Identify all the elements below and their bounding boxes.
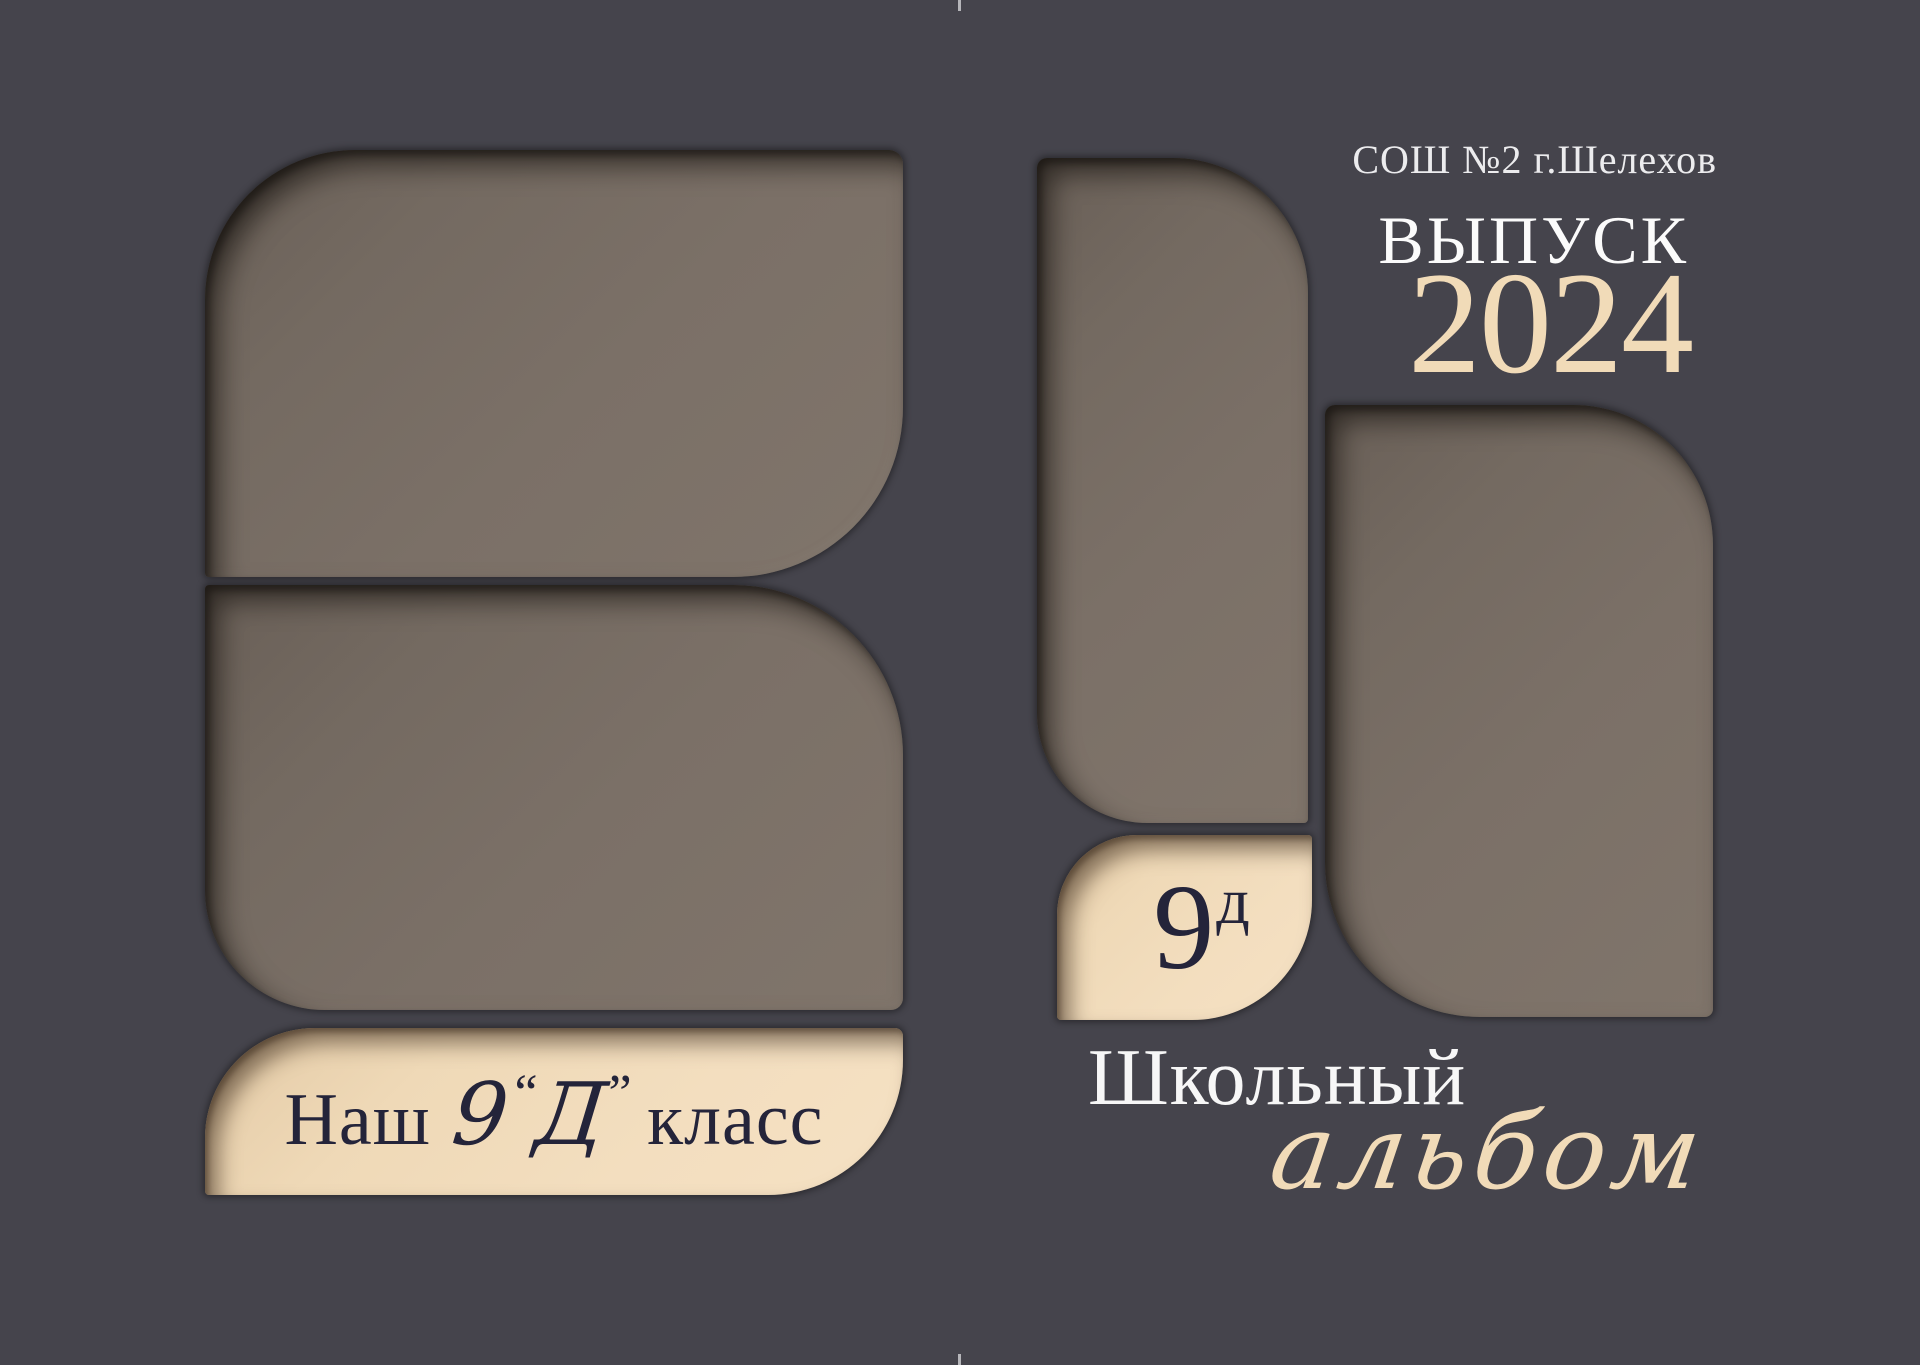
- class-badge: 9 д: [1057, 835, 1312, 1020]
- class-banner-text: Наш9“Д” класс: [284, 1059, 823, 1165]
- banner-quote-close: ”: [609, 1064, 628, 1123]
- spine-crop-mark-bottom: [958, 1354, 961, 1365]
- class-badge-number: 9: [1153, 867, 1214, 989]
- photo-frame-bottom-left: [205, 585, 903, 1010]
- class-badge-letter: д: [1216, 869, 1250, 935]
- spine-crop-mark-top: [958, 0, 961, 11]
- album-title-word2: альбом: [1265, 1100, 1713, 1204]
- class-badge-text: 9 д: [1119, 867, 1250, 989]
- photo-frame-right: [1325, 405, 1713, 1017]
- school-name: СОШ №2 г.Шелехов: [1352, 136, 1717, 183]
- banner-suffix: класс: [628, 1078, 824, 1163]
- photo-frame-middle: [1037, 158, 1308, 823]
- photo-frame-top-left: [205, 150, 903, 577]
- banner-class-number: 9: [448, 1065, 514, 1165]
- edition-year: 2024: [1408, 250, 1692, 396]
- album-cover: СОШ №2 г.Шелехов ВЫПУСК 2024 9 д Школьны…: [0, 0, 1920, 1365]
- banner-prefix: Наш: [284, 1078, 430, 1163]
- banner-quote-open: “: [514, 1064, 533, 1123]
- banner-class-letter: Д: [530, 1065, 611, 1165]
- class-banner: Наш9“Д” класс: [205, 1028, 903, 1195]
